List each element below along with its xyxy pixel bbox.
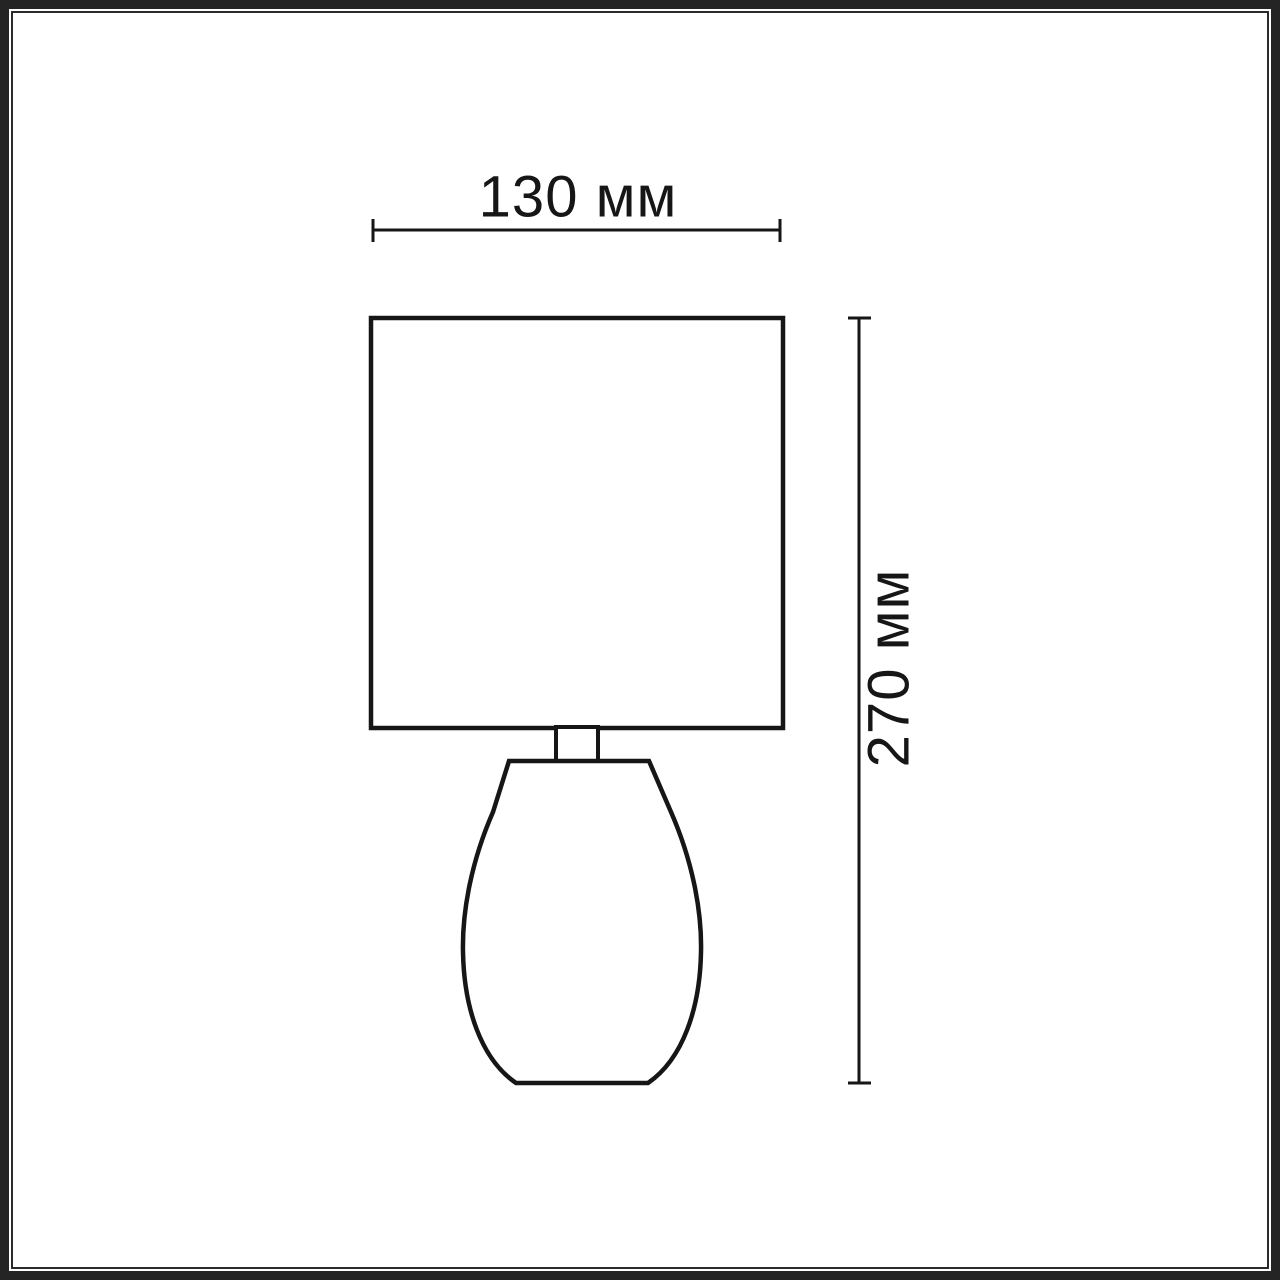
height-dimension-label: 270 мм — [856, 569, 923, 768]
lamp-base-outline — [463, 761, 701, 1083]
lampshade-outline — [371, 318, 783, 728]
width-dimension-label: 130 мм — [479, 164, 678, 231]
lamp-neck-outline — [556, 727, 598, 761]
technical-drawing-canvas: 130 мм 270 мм — [0, 0, 1280, 1280]
